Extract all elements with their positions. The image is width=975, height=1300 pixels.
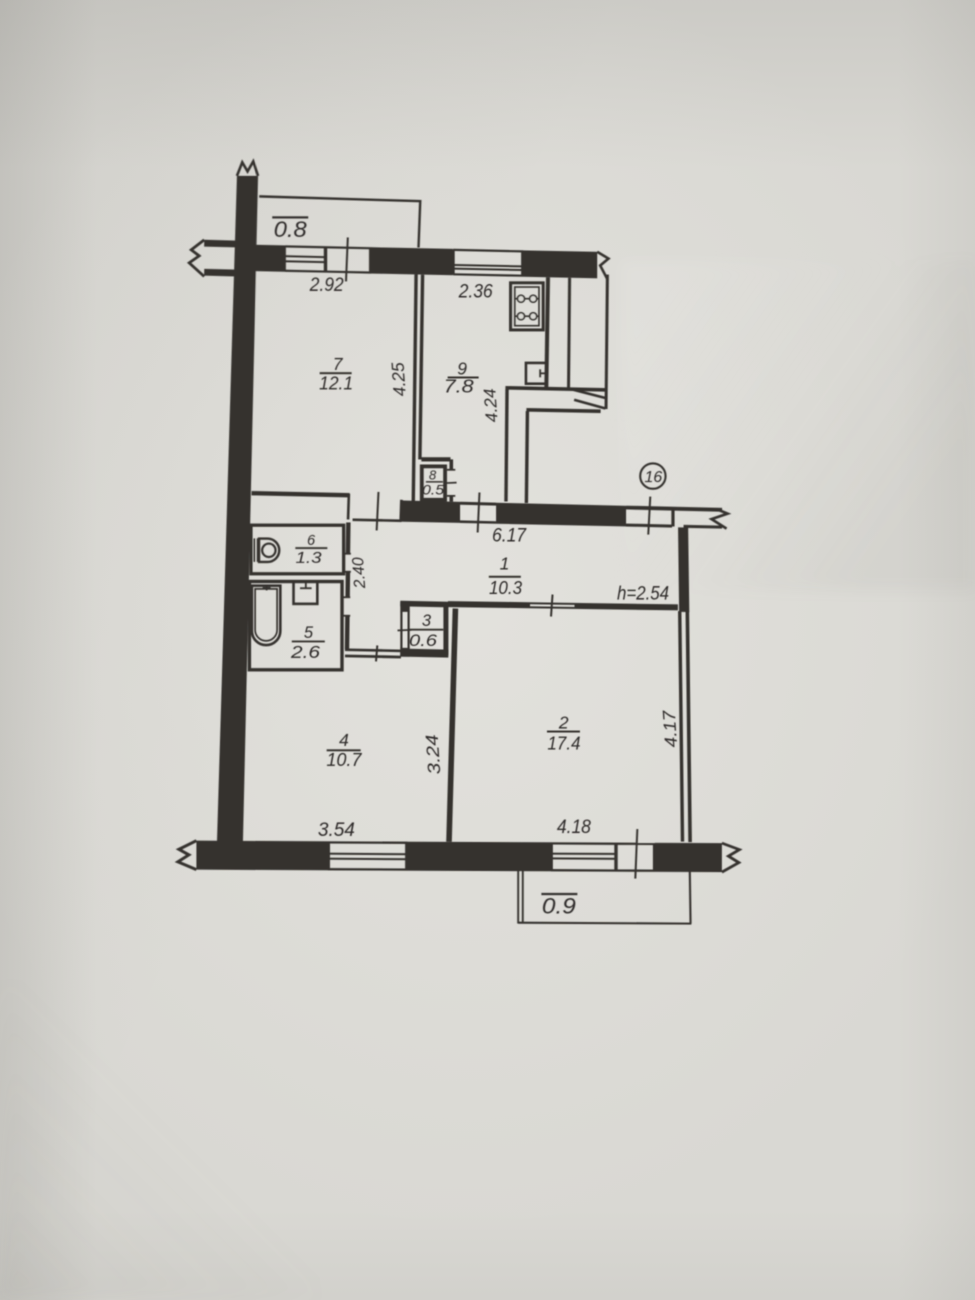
- svg-text:1: 1: [500, 554, 510, 574]
- svg-text:0.5: 0.5: [422, 482, 445, 497]
- svg-text:h=2.54: h=2.54: [617, 584, 669, 605]
- svg-text:3.24: 3.24: [422, 733, 445, 775]
- svg-text:8: 8: [429, 467, 437, 482]
- svg-text:2.40: 2.40: [350, 557, 369, 590]
- svg-text:2: 2: [558, 713, 569, 733]
- svg-text:0.9: 0.9: [542, 894, 577, 919]
- svg-text:4.25: 4.25: [387, 361, 409, 397]
- svg-text:1.3: 1.3: [296, 550, 322, 567]
- svg-text:2.36: 2.36: [458, 281, 493, 302]
- svg-text:4.24: 4.24: [480, 388, 501, 423]
- svg-text:7.8: 7.8: [444, 375, 475, 396]
- svg-text:6: 6: [307, 533, 316, 549]
- svg-text:4.18: 4.18: [557, 817, 591, 838]
- svg-text:3: 3: [422, 612, 432, 630]
- svg-text:3.54: 3.54: [318, 820, 355, 841]
- svg-text:5: 5: [304, 624, 314, 642]
- svg-text:17.4: 17.4: [547, 733, 580, 754]
- svg-text:16: 16: [644, 469, 662, 486]
- svg-text:0.6: 0.6: [409, 632, 438, 650]
- svg-text:4: 4: [339, 730, 349, 750]
- svg-text:0.8: 0.8: [274, 217, 308, 242]
- svg-text:7: 7: [333, 354, 344, 374]
- svg-text:6.17: 6.17: [492, 526, 527, 547]
- svg-text:12.1: 12.1: [319, 372, 353, 393]
- svg-text:2.6: 2.6: [290, 642, 321, 662]
- svg-text:2.92: 2.92: [309, 275, 344, 296]
- svg-text:4.17: 4.17: [659, 708, 682, 748]
- svg-text:10.3: 10.3: [489, 577, 523, 598]
- svg-text:10.7: 10.7: [326, 749, 362, 770]
